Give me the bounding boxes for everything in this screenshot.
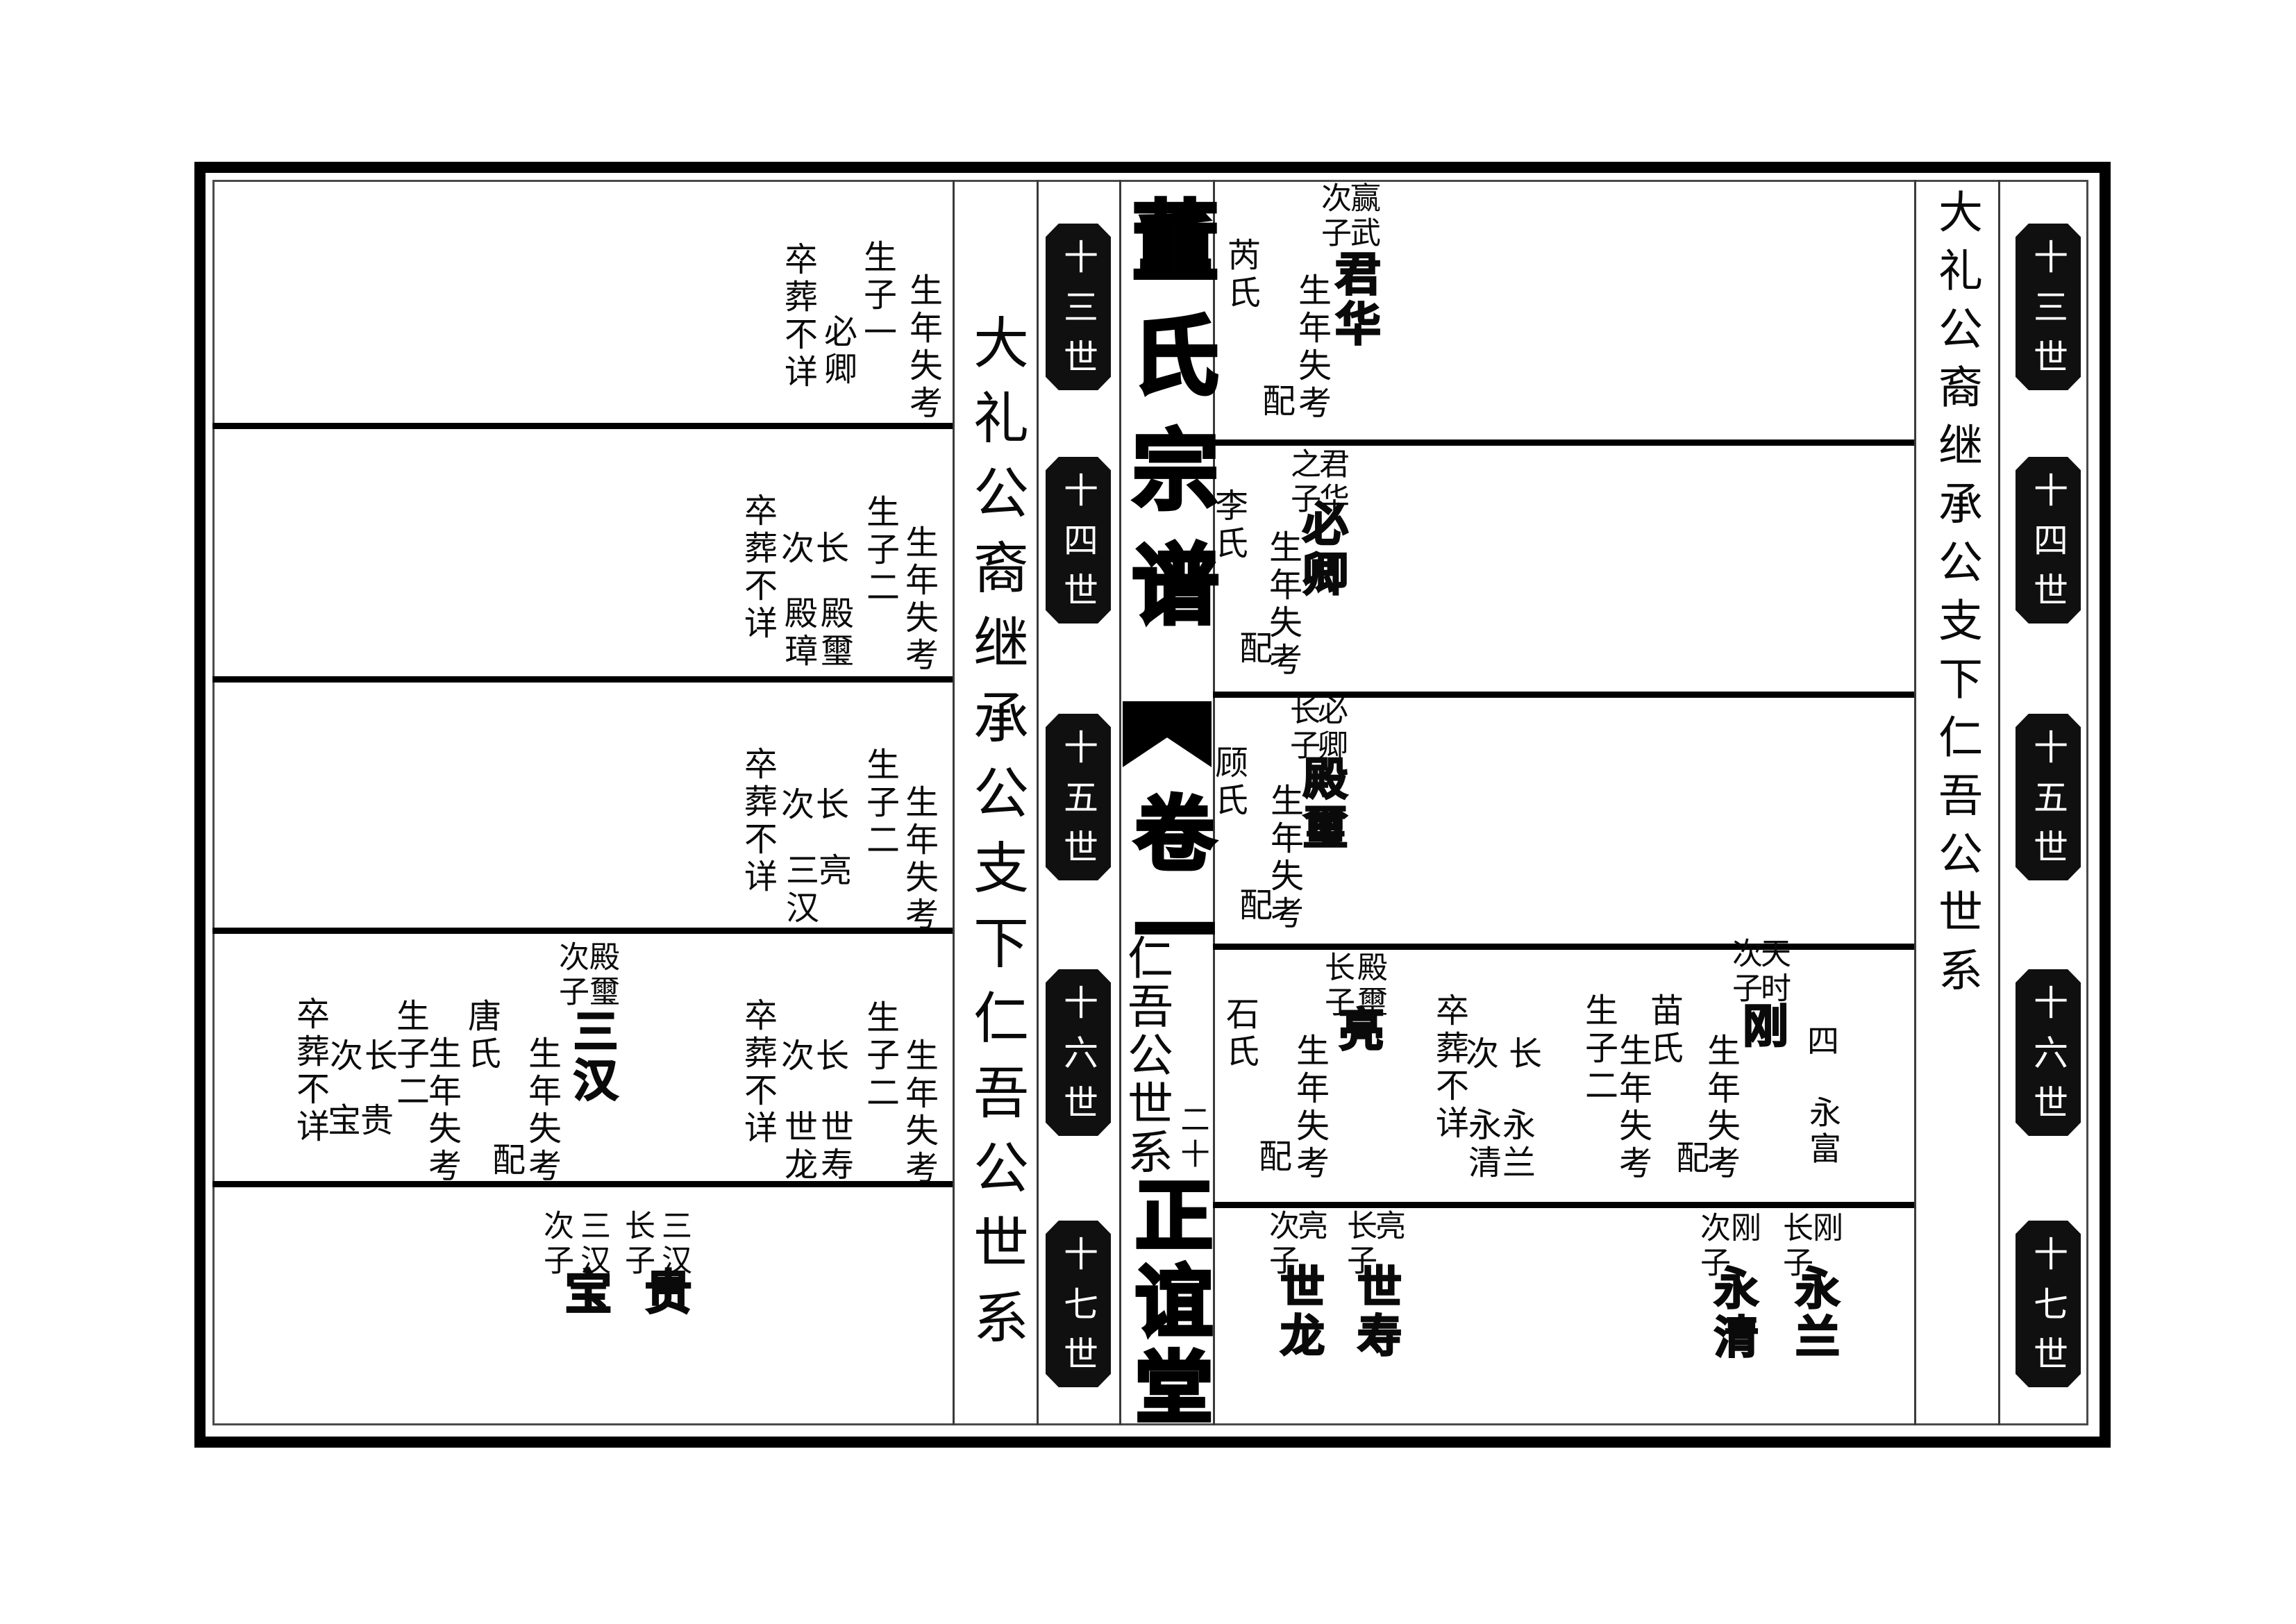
person-name: 三汉 [569, 1008, 614, 1105]
person-name: 君华 [1331, 250, 1377, 350]
row-separator [1213, 944, 1914, 950]
entry-text-column: 卒葬不详 [1432, 993, 1465, 1143]
entry-text-column: 世龙 [780, 1110, 814, 1184]
entry-text-column: 李氏 [1211, 488, 1244, 563]
person-name: 必卿 [1298, 500, 1344, 600]
spine-lineage: 仁吾公世系 [1123, 934, 1168, 1177]
column-divider [1914, 180, 1916, 1425]
column-divider [953, 180, 955, 1425]
entry-text-column: 生子二 [862, 494, 896, 607]
entry-text-column: 殿璋 [780, 596, 814, 671]
entry-text-column: 生子二 [862, 1000, 896, 1112]
entry-text-column: 长 [360, 1038, 394, 1075]
entry-text-column: 生子二 [392, 998, 426, 1111]
person-name: 宝 [560, 1267, 607, 1319]
entry-text-column: 亮 [1372, 1209, 1402, 1244]
entry-text-column: 永富 [1807, 1096, 1838, 1168]
entry-text-column: 贵 [356, 1103, 389, 1140]
entry-text-column: 次 [777, 1038, 810, 1075]
person-name: 刚 [1738, 1002, 1784, 1052]
entry-text-column: 配 [1235, 887, 1268, 925]
person-name: 殿璽 [1299, 755, 1343, 853]
entry-text-column: 生年失考 [901, 525, 935, 675]
lineage-banner-right: 大礼公裔继承公支下仁吾公世系 [1934, 189, 1979, 1005]
entry-text-column: 配 [1258, 383, 1291, 421]
lineage-banner-left: 大礼公裔继承公支下仁吾公世系 [968, 314, 1023, 1364]
entry-text-column: 天时 [1757, 937, 1788, 1007]
entry-text-column: 配 [1672, 1140, 1705, 1178]
entry-text-column: 次子 [1318, 182, 1348, 251]
entry-text-column: 苗氏 [1646, 993, 1679, 1068]
generation-badge: 十七世 [2016, 1221, 2081, 1387]
row-separator [212, 676, 953, 683]
entry-text-column: 宝 [324, 1103, 357, 1140]
generation-badge: 十五世 [2016, 714, 2081, 880]
person-name: 永兰 [1791, 1265, 1836, 1362]
entry-text-column: 卒葬不详 [740, 493, 773, 643]
entry-text-column: 永清 [1464, 1107, 1498, 1182]
entry-text-column: 长 [812, 1038, 845, 1075]
entry-text-column: 四 [1804, 1024, 1836, 1060]
entry-text-column: 殿璽 [816, 596, 850, 671]
entry-text-column: 长子 [1287, 694, 1317, 764]
spine-book-title: 董氏宗谱 [1124, 196, 1211, 654]
entry-text-column: 生年失考 [1266, 783, 1300, 933]
row-separator [212, 928, 953, 934]
entry-text-column: 刚 [1809, 1212, 1840, 1246]
entry-text-column: 殿璽 [586, 941, 617, 1010]
entry-text-column: 刚 [1727, 1212, 1758, 1246]
entry-text-column: 生年失考 [1292, 1033, 1325, 1183]
entry-text-column: 生年失考 [1294, 273, 1327, 423]
entry-text-column: 卒葬不详 [740, 998, 773, 1148]
entry-text-column: 生子一 [860, 240, 893, 352]
generation-badge: 十四世 [2016, 457, 2081, 623]
entry-text-column: 卒葬不详 [740, 746, 773, 896]
person-name: 贵 [639, 1267, 687, 1319]
entry-text-column: 生年失考 [901, 785, 935, 935]
entry-text-column: 配 [488, 1142, 521, 1180]
entry-text-column: 生年失考 [524, 1036, 558, 1186]
entry-text-column: 生年失考 [1615, 1033, 1648, 1183]
entry-text-column: 芮氏 [1223, 237, 1257, 312]
row-separator [1213, 440, 1914, 446]
entry-text-column: 长 [1505, 1036, 1538, 1073]
entry-text-column: 次 [777, 787, 810, 824]
entry-text-column: 长 [812, 530, 845, 568]
spine-folio-number: 二十 [1178, 1104, 1207, 1173]
entry-text-column: 亮 [814, 853, 848, 890]
entry-text-column: 三汉 [782, 853, 815, 928]
entry-text-column: 生年失考 [424, 1036, 458, 1186]
entry-text-column: 生年失考 [901, 1038, 935, 1188]
entry-text-column: 生子二 [1581, 993, 1614, 1105]
genealogy-book-spread: 董氏宗谱 卷一 仁吾公世系 二十 正谊堂 大礼公裔继承公支下仁吾公世系 大礼公裔… [0, 0, 2296, 1624]
entry-text-column: 配 [1255, 1139, 1288, 1176]
row-separator [212, 423, 953, 429]
generation-badge: 十五世 [1046, 714, 1111, 880]
person-name: 永清 [1710, 1265, 1754, 1362]
entry-text-column: 亮 [1294, 1209, 1325, 1244]
entry-text-column: 永兰 [1498, 1107, 1532, 1182]
entry-text-column: 世寿 [816, 1110, 850, 1184]
column-divider [1998, 180, 2000, 1425]
entry-text-column: 石氏 [1222, 996, 1255, 1071]
entry-text-column: 顾氏 [1211, 745, 1244, 820]
generation-badge: 十七世 [1046, 1221, 1111, 1387]
entry-text-column: 配 [1235, 630, 1268, 668]
person-name: 世龙 [1276, 1264, 1321, 1361]
generation-badge: 十六世 [1046, 969, 1111, 1136]
generation-badge: 十三世 [1046, 224, 1111, 390]
entry-text-column: 生年失考 [1703, 1033, 1736, 1183]
row-separator [1213, 1202, 1914, 1208]
entry-text-column: 必卿 [820, 314, 853, 389]
generation-badge: 十六世 [2016, 969, 2081, 1136]
entry-text-column: 次 [777, 530, 810, 568]
entry-text-column: 次子 [555, 941, 586, 1010]
entry-text-column: 次 [326, 1038, 359, 1075]
person-name: 世寿 [1353, 1264, 1398, 1361]
column-divider [1037, 180, 1039, 1425]
entry-text-column: 卒葬不详 [780, 242, 814, 392]
generation-badge: 十四世 [1046, 457, 1111, 623]
generation-badge: 十三世 [2016, 224, 2081, 390]
entry-text-column: 生年失考 [905, 273, 939, 423]
entry-text-column: 卒葬不详 [292, 996, 326, 1146]
person-name: 亮 [1334, 1005, 1380, 1055]
entry-text-column: 赢武 [1347, 182, 1377, 251]
spine-hall-name: 正谊堂 [1128, 1175, 1206, 1433]
entry-text-column: 生子二 [862, 747, 896, 860]
entry-text-column: 长 [812, 787, 845, 824]
entry-text-column: 唐氏 [464, 998, 497, 1073]
entry-text-column: 次子 [1729, 937, 1759, 1007]
